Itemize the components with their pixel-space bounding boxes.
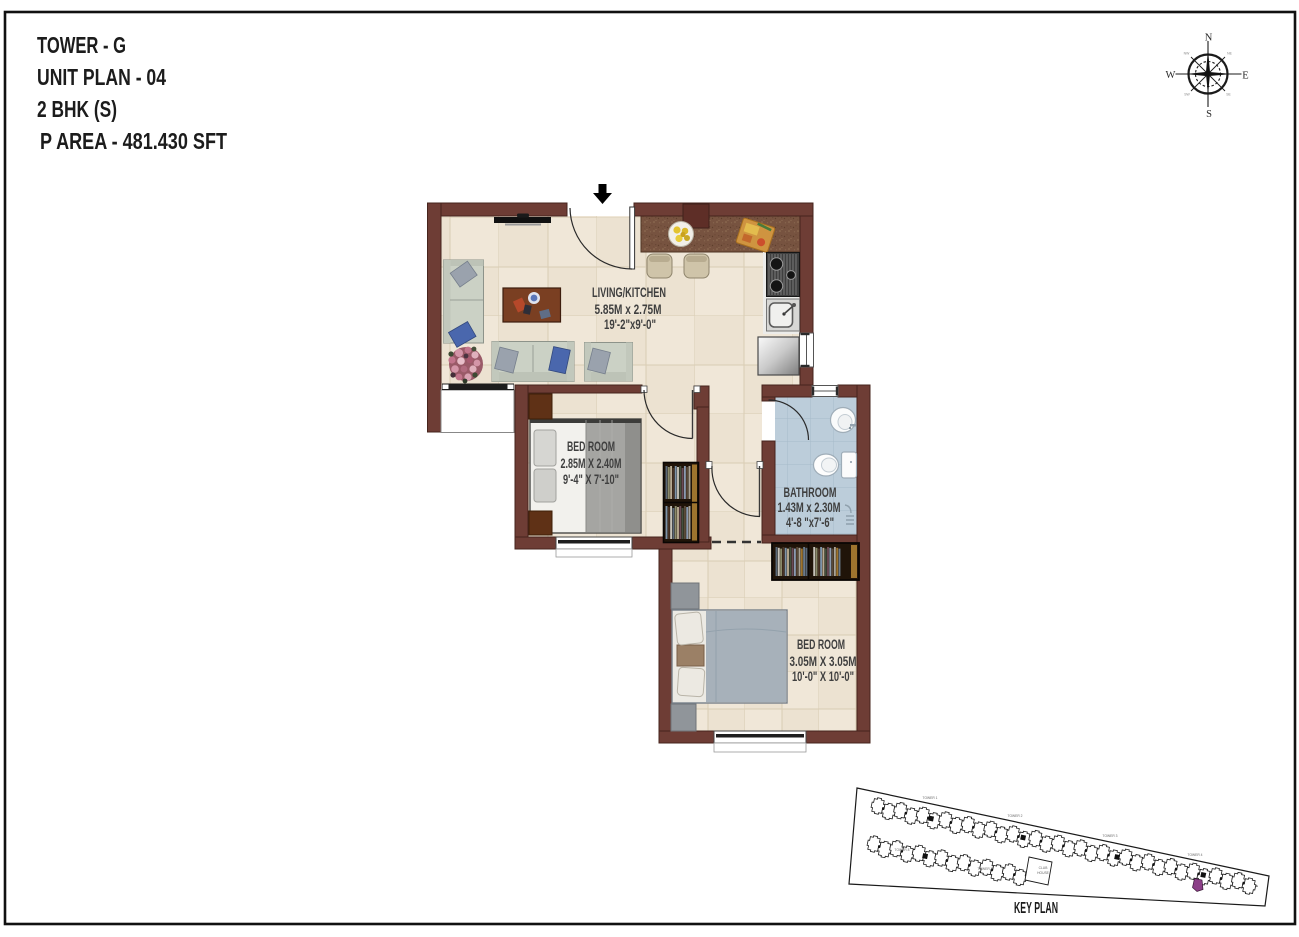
svg-text:3.05M X 3.05M: 3.05M X 3.05M bbox=[790, 654, 857, 669]
svg-text:5.85M x 2.75M: 5.85M x 2.75M bbox=[595, 302, 662, 317]
svg-text:HOUSE: HOUSE bbox=[1037, 871, 1050, 875]
svg-text:TOWER 1: TOWER 1 bbox=[923, 796, 938, 800]
svg-text:S: S bbox=[1206, 109, 1212, 120]
svg-text:2 BHK (S): 2 BHK (S) bbox=[37, 96, 117, 122]
svg-text:W: W bbox=[1166, 70, 1176, 81]
svg-text:SE: SE bbox=[1226, 93, 1231, 97]
svg-text:9'-4" X 7'-10": 9'-4" X 7'-10" bbox=[563, 472, 619, 487]
svg-text:E: E bbox=[1242, 71, 1248, 82]
svg-text:1.43M x 2.30M: 1.43M x 2.30M bbox=[778, 500, 841, 515]
svg-text:UNIT PLAN - 04: UNIT PLAN - 04 bbox=[37, 64, 166, 90]
svg-text:CLUB: CLUB bbox=[1039, 866, 1049, 870]
svg-text:4'-8 "x7'-6": 4'-8 "x7'-6" bbox=[786, 515, 834, 530]
svg-text:TOWER 2: TOWER 2 bbox=[1008, 814, 1023, 818]
svg-text:BED ROOM: BED ROOM bbox=[567, 439, 615, 454]
svg-text:2.85M X 2.40M: 2.85M X 2.40M bbox=[561, 456, 622, 471]
svg-text:TOWER - G: TOWER - G bbox=[37, 32, 126, 58]
svg-text:KEY PLAN: KEY PLAN bbox=[1014, 900, 1058, 917]
svg-text:BED ROOM: BED ROOM bbox=[797, 637, 845, 652]
svg-text:BATHROOM: BATHROOM bbox=[784, 485, 837, 500]
svg-text:TOWER 4: TOWER 4 bbox=[1188, 853, 1203, 857]
svg-text:TOWER 8: TOWER 8 bbox=[895, 848, 910, 852]
svg-text:10'-0" X 10'-0": 10'-0" X 10'-0" bbox=[792, 669, 854, 684]
svg-text:N: N bbox=[1205, 33, 1213, 44]
svg-text:NE: NE bbox=[1227, 52, 1232, 56]
svg-text:SW: SW bbox=[1184, 93, 1190, 97]
svg-text:LIVING/KITCHEN: LIVING/KITCHEN bbox=[592, 285, 666, 300]
svg-text:TOWER 3: TOWER 3 bbox=[1103, 834, 1118, 838]
svg-text:TOWER 7: TOWER 7 bbox=[978, 867, 993, 871]
svg-text:19'-2"x9'-0": 19'-2"x9'-0" bbox=[604, 317, 656, 332]
svg-text:NW: NW bbox=[1184, 52, 1190, 56]
svg-text:P AREA - 481.430 SFT: P AREA - 481.430 SFT bbox=[40, 128, 227, 154]
